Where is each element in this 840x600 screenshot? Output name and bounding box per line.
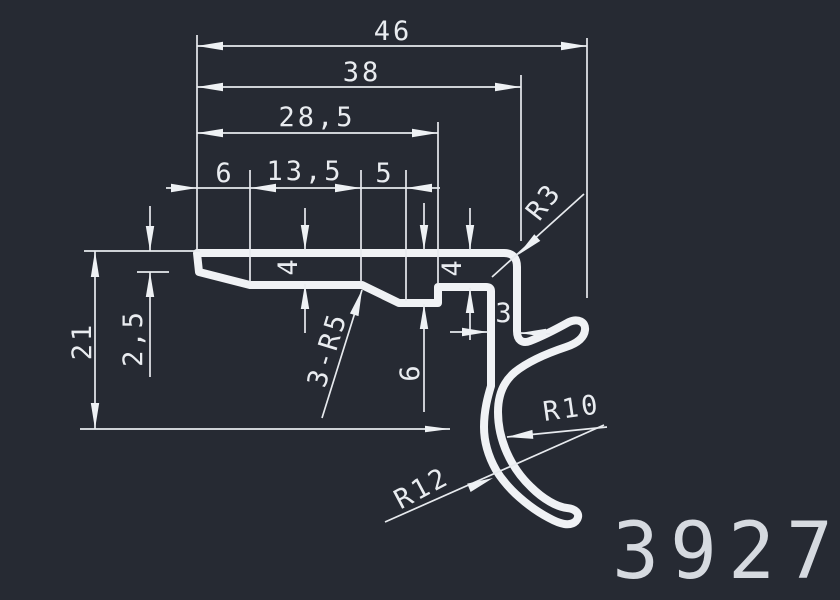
arrow-28-5-left bbox=[197, 129, 223, 137]
dimension-labels: 46 38 28,5 6 13,5 5 R3 4 4 2,5 21 3-R5 6… bbox=[67, 16, 603, 516]
dim-38-label: 38 bbox=[343, 57, 382, 88]
dim-28-5-label: 28,5 bbox=[278, 102, 355, 133]
arrow-21-top bbox=[91, 251, 99, 277]
arrow-38-left bbox=[197, 83, 223, 91]
arrow-21-bottom bbox=[91, 403, 99, 429]
arrow-ref-bottom bbox=[425, 426, 450, 432]
cad-canvas: 46 38 28,5 6 13,5 5 R3 4 4 2,5 21 3-R5 6… bbox=[0, 0, 840, 600]
arrow-6v-top bbox=[420, 225, 428, 250]
dim-6-seg-label: 6 bbox=[215, 158, 234, 189]
arrow-4r-top bbox=[466, 225, 474, 250]
dim-21-label: 21 bbox=[67, 322, 98, 361]
dim-6-depth-label: 6 bbox=[395, 362, 426, 381]
dim-2-5-label: 2,5 bbox=[118, 309, 149, 367]
arrow-3-left bbox=[462, 328, 488, 336]
arrow-38-right bbox=[495, 83, 521, 91]
arrow-seg-d bbox=[406, 184, 432, 192]
dim-r10-label: R10 bbox=[541, 389, 603, 428]
dim-3-label: 3 bbox=[495, 298, 514, 329]
dim-4-left-label: 4 bbox=[273, 256, 304, 275]
dim-r3-label: R3 bbox=[520, 177, 568, 226]
cad-drawing: 46 38 28,5 6 13,5 5 R3 4 4 2,5 21 3-R5 6… bbox=[0, 0, 840, 600]
dim-4-right-label: 4 bbox=[437, 257, 468, 276]
dim-r12-label: R12 bbox=[389, 461, 455, 515]
arrow-r10 bbox=[507, 430, 533, 439]
dim-3-r5-label: 3-R5 bbox=[302, 308, 354, 391]
arrow-4l-top bbox=[301, 225, 309, 250]
dim-13-5-label: 13,5 bbox=[266, 156, 343, 187]
profile-outline bbox=[197, 253, 585, 524]
dim-46-label: 46 bbox=[374, 16, 413, 47]
dim-5-label: 5 bbox=[375, 158, 394, 189]
arrow-2-5-bottom bbox=[146, 272, 154, 297]
arrow-6v-bottom bbox=[420, 304, 428, 329]
arrow-28-5-right bbox=[412, 129, 438, 137]
arrow-4r-bottom bbox=[466, 288, 474, 313]
arrow-46-left bbox=[197, 42, 223, 50]
arrow-2-5-top bbox=[146, 226, 154, 251]
arrow-3-r5 bbox=[350, 290, 362, 316]
arrow-seg-a bbox=[171, 184, 197, 192]
part-number: 3927 bbox=[612, 507, 840, 597]
arrow-46-right bbox=[561, 42, 587, 50]
